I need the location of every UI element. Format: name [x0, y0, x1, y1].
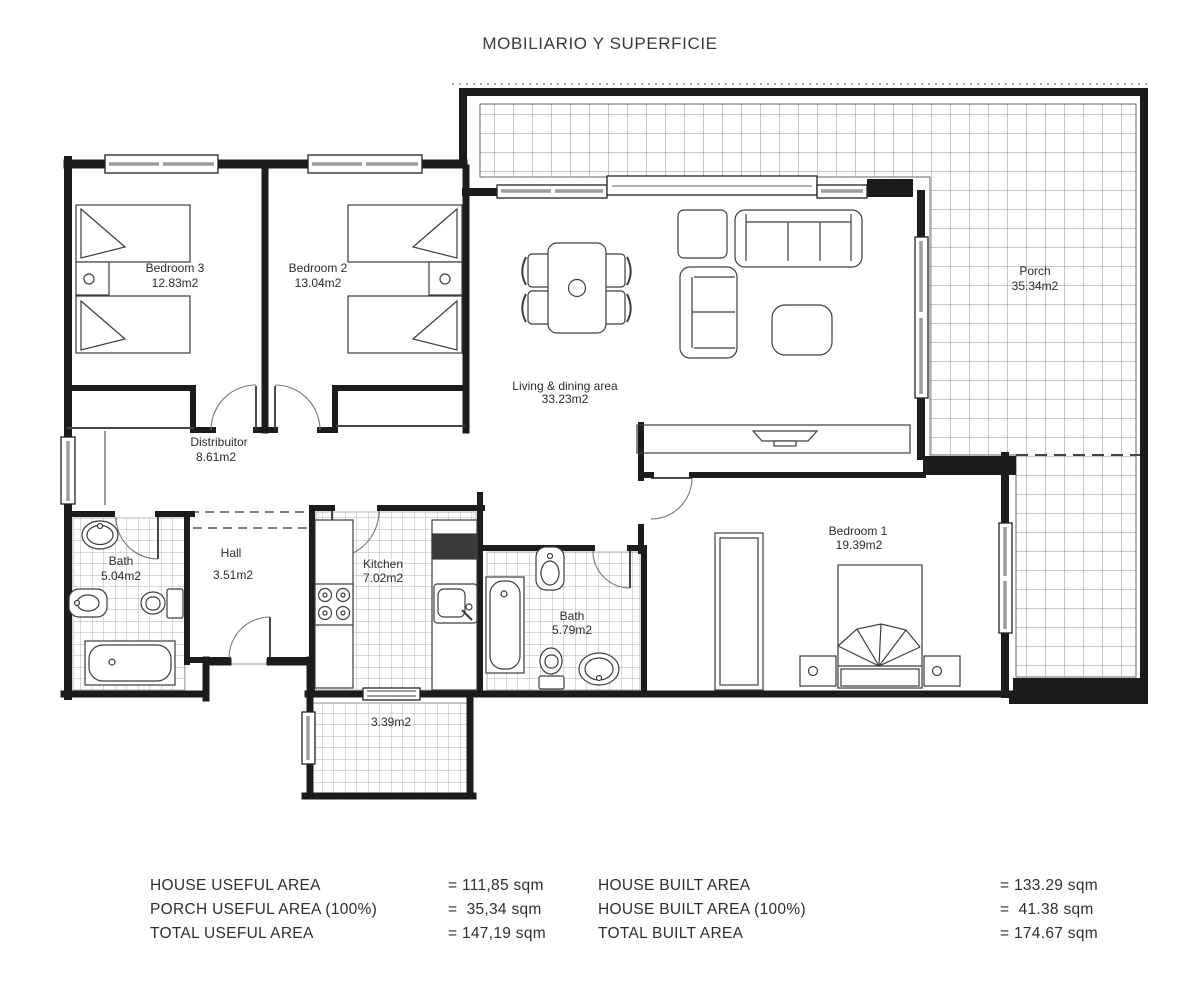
label-bath2: Bath — [560, 609, 585, 623]
label-bedroom1-area: 19.39m2 — [836, 538, 883, 552]
label-kitchen-area: 7.02m2 — [363, 571, 403, 585]
summary-label: HOUSE BUILT AREA (100%) — [598, 898, 1000, 922]
tv-icon — [753, 431, 817, 441]
bedroom2-furniture — [348, 205, 462, 353]
summary-value: = 147,19 sqm — [448, 922, 598, 946]
label-bedroom2-area: 13.04m2 — [295, 276, 342, 290]
summary-value: = 174.67 sqm — [1000, 922, 1150, 946]
label-bedroom2: Bedroom 2 — [289, 261, 348, 275]
summary-value: = 133.29 sqm — [1000, 874, 1150, 898]
label-living-area: 33.23m2 — [542, 392, 589, 406]
label-bath1-area: 5.04m2 — [101, 569, 141, 583]
label-bedroom1: Bedroom 1 — [829, 524, 888, 538]
label-distributor: Distribuitor — [190, 435, 247, 449]
summary-value: = 35,34 sqm — [448, 898, 598, 922]
summary-value: = 41.38 sqm — [1000, 898, 1150, 922]
label-bath2-area: 5.79m2 — [552, 623, 592, 637]
label-bedroom3: Bedroom 3 — [146, 261, 205, 275]
area-summary-table: HOUSE USEFUL AREA = 111,85 sqm HOUSE BUI… — [150, 874, 1150, 946]
summary-label: HOUSE USEFUL AREA — [150, 874, 448, 898]
label-terrace-area: 3.39m2 — [371, 715, 411, 729]
label-kitchen: Kitchen — [363, 557, 403, 571]
summary-label: TOTAL BUILT AREA — [598, 922, 1000, 946]
summary-label: TOTAL USEFUL AREA — [150, 922, 448, 946]
summary-row: TOTAL USEFUL AREA = 147,19 sqm TOTAL BUI… — [150, 922, 1150, 946]
floor-plan-page: MOBILIARIO Y SUPERFICIE — [0, 0, 1200, 987]
living-furniture — [522, 210, 910, 453]
floor-plan: Bedroom 3 12.83m2 Bedroom 2 13.04m2 Livi… — [0, 0, 1200, 987]
label-porch-area: 35.34m2 — [1012, 279, 1059, 293]
window-kitchen-terrace — [363, 688, 420, 700]
label-porch: Porch — [1019, 264, 1050, 278]
label-hall: Hall — [221, 546, 242, 560]
summary-label: PORCH USEFUL AREA (100%) — [150, 898, 448, 922]
summary-label: HOUSE BUILT AREA — [598, 874, 1000, 898]
label-bath1: Bath — [109, 554, 134, 568]
label-hall-area: 3.51m2 — [213, 568, 253, 582]
summary-value: = 111,85 sqm — [448, 874, 598, 898]
label-bedroom3-area: 12.83m2 — [152, 276, 199, 290]
summary-row: PORCH USEFUL AREA (100%) = 35,34 sqm HOU… — [150, 898, 1150, 922]
label-distributor-area: 8.61m2 — [196, 450, 236, 464]
bedroom1-furniture — [715, 533, 960, 690]
kitchen-appliance — [432, 534, 477, 559]
label-living: Living & dining area — [512, 379, 618, 393]
wardrobe — [715, 533, 763, 690]
summary-row: HOUSE USEFUL AREA = 111,85 sqm HOUSE BUI… — [150, 874, 1150, 898]
